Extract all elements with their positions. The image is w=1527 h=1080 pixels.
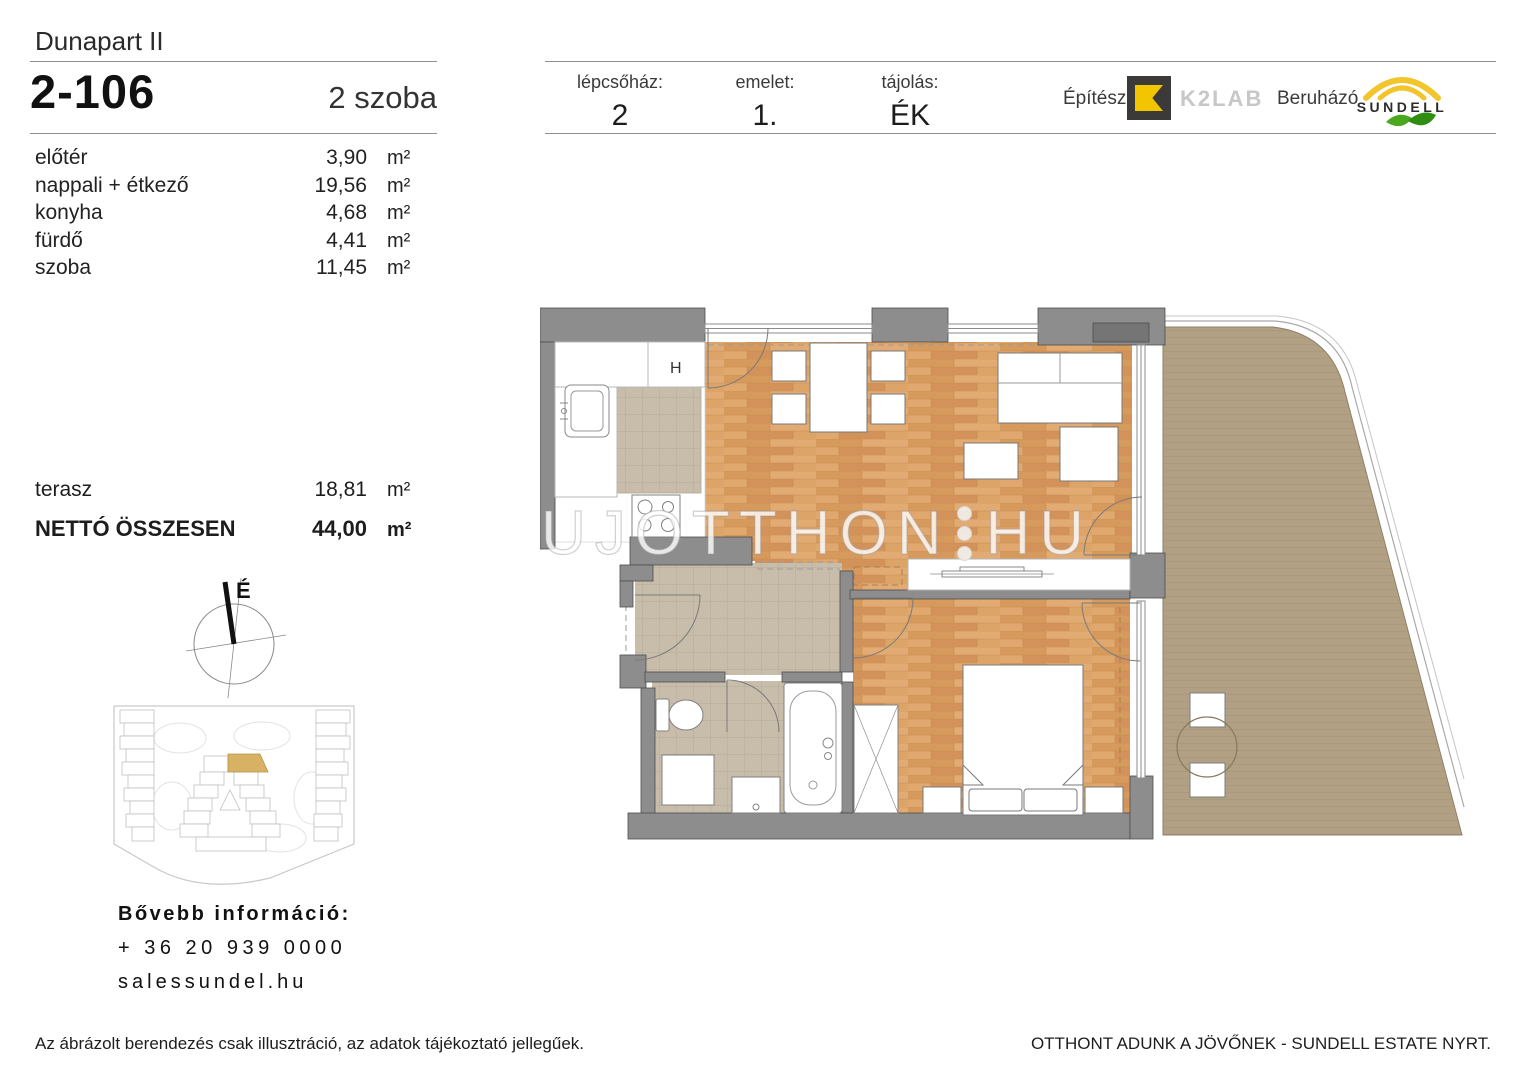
burner: [639, 519, 651, 531]
terrace-deck: [1163, 327, 1462, 835]
coffee-table: [964, 443, 1018, 479]
bathroom-sink: [732, 777, 780, 813]
dining-table: [810, 343, 867, 432]
room-area: 11,45: [279, 256, 367, 280]
contact-phone: + 36 20 939 0000: [118, 937, 358, 960]
toilet-tank: [656, 699, 669, 731]
unit-header: 2-106 2 szoba: [30, 68, 437, 115]
room-name: terasz: [35, 478, 279, 502]
nightstand: [923, 787, 961, 813]
wall: [540, 342, 555, 549]
wall: [1130, 776, 1153, 839]
staircase-info: lépcsőház: 2: [545, 72, 695, 133]
contact-website[interactable]: salessundel.hu: [118, 971, 358, 994]
nightstand: [1085, 787, 1123, 813]
orientation-label: tájolás:: [835, 72, 985, 93]
architect-name: K2LAB: [1180, 86, 1263, 112]
dining-chair: [772, 351, 806, 381]
dining-chair: [871, 394, 905, 424]
hall-floor: [635, 563, 842, 675]
room-unit: m²: [367, 257, 437, 280]
unit-id: 2-106: [30, 68, 155, 115]
bathtub: [784, 683, 842, 813]
divider: [30, 61, 437, 62]
pillow: [969, 789, 1022, 811]
floorplan-sheet: Dunapart II 2-106 2 szoba lépcsőház: 2 e…: [0, 0, 1527, 1080]
divider: [30, 133, 437, 134]
burner: [663, 502, 674, 513]
wall: [872, 308, 948, 342]
staircase-value: 2: [545, 99, 695, 133]
room-name: szoba: [35, 256, 279, 280]
toilet: [669, 700, 703, 730]
orientation-info: tájolás: ÉK: [835, 72, 985, 133]
floor-value: 1.: [690, 99, 840, 133]
north-compass-icon: É: [186, 572, 286, 702]
room-name: fürdő: [35, 229, 279, 253]
developer-label: Beruházó: [1277, 88, 1358, 110]
sideboard: [908, 559, 1130, 590]
terrace-row: terasz 18,81 m²: [35, 478, 437, 502]
table-row: előtér 3,90 m²: [35, 146, 437, 174]
company-slogan: OTTHONT ADUNK A JÖVŐNEK - SUNDELL ESTATE…: [1031, 1034, 1491, 1054]
floor-plan: H: [540, 295, 1465, 855]
tv: [960, 567, 1024, 571]
total-unit: m²: [367, 519, 437, 542]
room-unit: m²: [367, 230, 437, 253]
table-row: szoba 11,45 m²: [35, 256, 437, 284]
wall: [840, 571, 853, 672]
pillow: [1024, 789, 1077, 811]
room-area: 3,90: [279, 146, 367, 170]
sundell-logo-icon: SUNDELL: [1350, 60, 1454, 136]
contact-heading: Bővebb információ:: [118, 903, 358, 926]
contact-block: Bővebb információ: + 36 20 939 0000 sale…: [118, 903, 358, 994]
total-area: 44,00: [279, 516, 367, 542]
floor-plan-drawing: H: [540, 295, 1465, 850]
shaft: [1093, 323, 1149, 342]
room-unit: m²: [367, 175, 437, 198]
k2lab-glyph-icon: [1135, 85, 1163, 111]
room-unit: m²: [367, 147, 437, 170]
wall: [620, 565, 653, 581]
wall: [628, 813, 1130, 839]
washing-machine: [662, 755, 714, 805]
wall: [782, 672, 842, 682]
sun-arc-inner: [1380, 88, 1424, 98]
room-area: 18,81: [279, 478, 367, 502]
site-plan-drawing: [100, 698, 370, 893]
project-title: Dunapart II: [35, 26, 164, 57]
orientation-value: ÉK: [835, 99, 985, 133]
total-label: NETTÓ ÖSSZESEN: [35, 516, 279, 542]
staircase-label: lépcsőház:: [545, 72, 695, 93]
stove: [632, 495, 680, 537]
room-name: nappali + étkező: [35, 174, 279, 198]
room-unit: m²: [367, 479, 437, 502]
room-area: 4,68: [279, 201, 367, 225]
floor-info: emelet: 1.: [690, 72, 840, 133]
developer-name: SUNDELL: [1357, 99, 1448, 115]
compass: É: [186, 572, 286, 707]
room-unit: m²: [367, 202, 437, 225]
kitchen-counter: [555, 342, 705, 387]
site-plan: [100, 698, 370, 898]
wall: [842, 682, 853, 813]
leaf-left-icon: [1386, 115, 1412, 126]
unit-type: 2 szoba: [328, 81, 437, 115]
room-name: konyha: [35, 201, 279, 225]
room-area-table: előtér 3,90 m² nappali + étkező 19,56 m²…: [35, 146, 437, 284]
terrace-chair: [1190, 693, 1225, 727]
room-area: 19,56: [279, 174, 367, 198]
room-name: előtér: [35, 146, 279, 170]
dining-chair: [772, 394, 806, 424]
wall: [641, 688, 655, 815]
armchair: [1060, 427, 1118, 481]
north-label: É: [236, 578, 251, 603]
kitchen-tile: [617, 387, 701, 493]
k2lab-logo-icon: [1127, 76, 1171, 120]
burner: [638, 500, 652, 514]
terrace-chair: [1190, 763, 1225, 797]
sundell-logo: SUNDELL: [1350, 60, 1454, 141]
burner: [662, 519, 675, 532]
disclaimer-text: Az ábrázolt berendezés csak illusztráció…: [35, 1034, 584, 1054]
wall: [620, 581, 633, 607]
table-row: nappali + étkező 19,56 m²: [35, 174, 437, 202]
wall: [645, 672, 725, 682]
floor-label: emelet:: [690, 72, 840, 93]
table-row: fürdő 4,41 m²: [35, 229, 437, 257]
architect-label: Építész: [1063, 88, 1126, 110]
north-needle: [225, 582, 234, 644]
fridge-label: H: [670, 360, 682, 377]
table-row: konyha 4,68 m²: [35, 201, 437, 229]
wardrobe: [854, 705, 898, 813]
wall: [1130, 553, 1165, 598]
terrace: [1163, 316, 1464, 835]
dining-chair: [871, 351, 905, 381]
room-area: 4,41: [279, 229, 367, 253]
wall: [540, 308, 705, 342]
total-row: NETTÓ ÖSSZESEN 44,00 m²: [35, 516, 437, 542]
wall: [630, 537, 752, 565]
